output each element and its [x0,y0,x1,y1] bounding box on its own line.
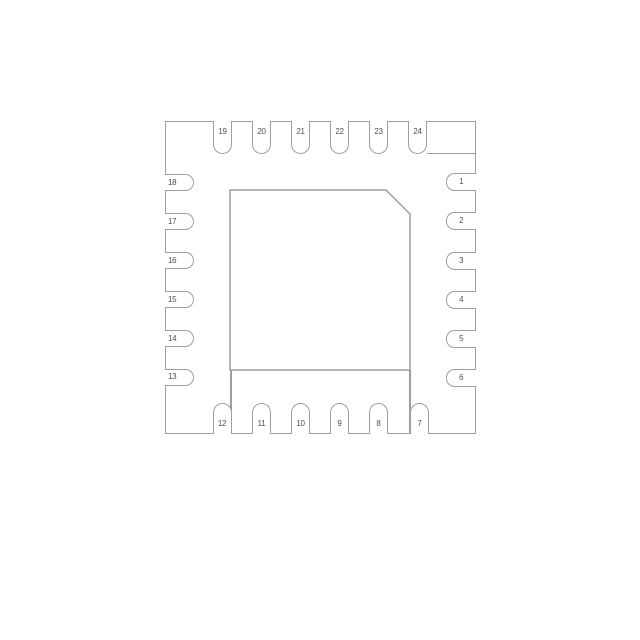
pin-label: 14 [168,334,176,344]
pin-24: 24 [408,121,427,154]
pin-label: 5 [459,334,463,344]
pin-label: 17 [168,217,176,227]
pin-label: 2 [459,216,463,226]
pin-label: 7 [417,419,421,429]
pin-label: 3 [459,256,463,266]
pin-8: 8 [369,403,388,434]
pin-label: 9 [337,419,341,429]
pin-15: 15 [165,291,194,308]
pin-22: 22 [330,121,349,154]
pin-label: 4 [459,295,463,305]
corner-indicator-line [427,153,476,155]
pin-label: 16 [168,256,176,266]
pin-1: 1 [446,173,476,191]
pin-label: 23 [374,127,382,137]
pin-label: 1 [459,177,463,187]
pin-11: 11 [252,403,271,434]
pin-label: 11 [258,419,266,429]
pin-21: 21 [291,121,310,154]
pin-label: 13 [168,372,176,382]
pin-5: 5 [446,330,476,348]
pin-18: 18 [165,174,194,191]
pin-6: 6 [446,369,476,387]
pin-label: 18 [168,178,176,188]
pin-label: 20 [257,127,265,137]
pin-12: 12 [213,403,232,434]
pin-3: 3 [446,252,476,270]
pin-10: 10 [291,403,310,434]
pin-label: 8 [376,419,380,429]
pin-9: 9 [330,403,349,434]
pin-label: 24 [413,127,421,137]
pin-13: 13 [165,369,194,386]
pin-label: 15 [168,295,176,305]
pin-label: 22 [335,127,343,137]
pin-4: 4 [446,291,476,309]
exposed-pad [229,189,411,371]
pin-label: 10 [296,419,304,429]
pin-label: 6 [459,373,463,383]
pin-14: 14 [165,330,194,347]
pin-19: 19 [213,121,232,154]
pin-17: 17 [165,213,194,230]
qfn24-package-diagram: 19 20 21 22 23 24 1 2 3 4 5 6 18 17 16 1… [0,0,640,640]
pin-label: 19 [218,127,226,137]
pin-label: 12 [218,419,226,429]
pin-2: 2 [446,212,476,230]
pin-7: 7 [410,403,429,434]
pin-23: 23 [369,121,388,154]
pin-label: 21 [296,127,304,137]
pin-16: 16 [165,252,194,269]
pin-20: 20 [252,121,271,154]
